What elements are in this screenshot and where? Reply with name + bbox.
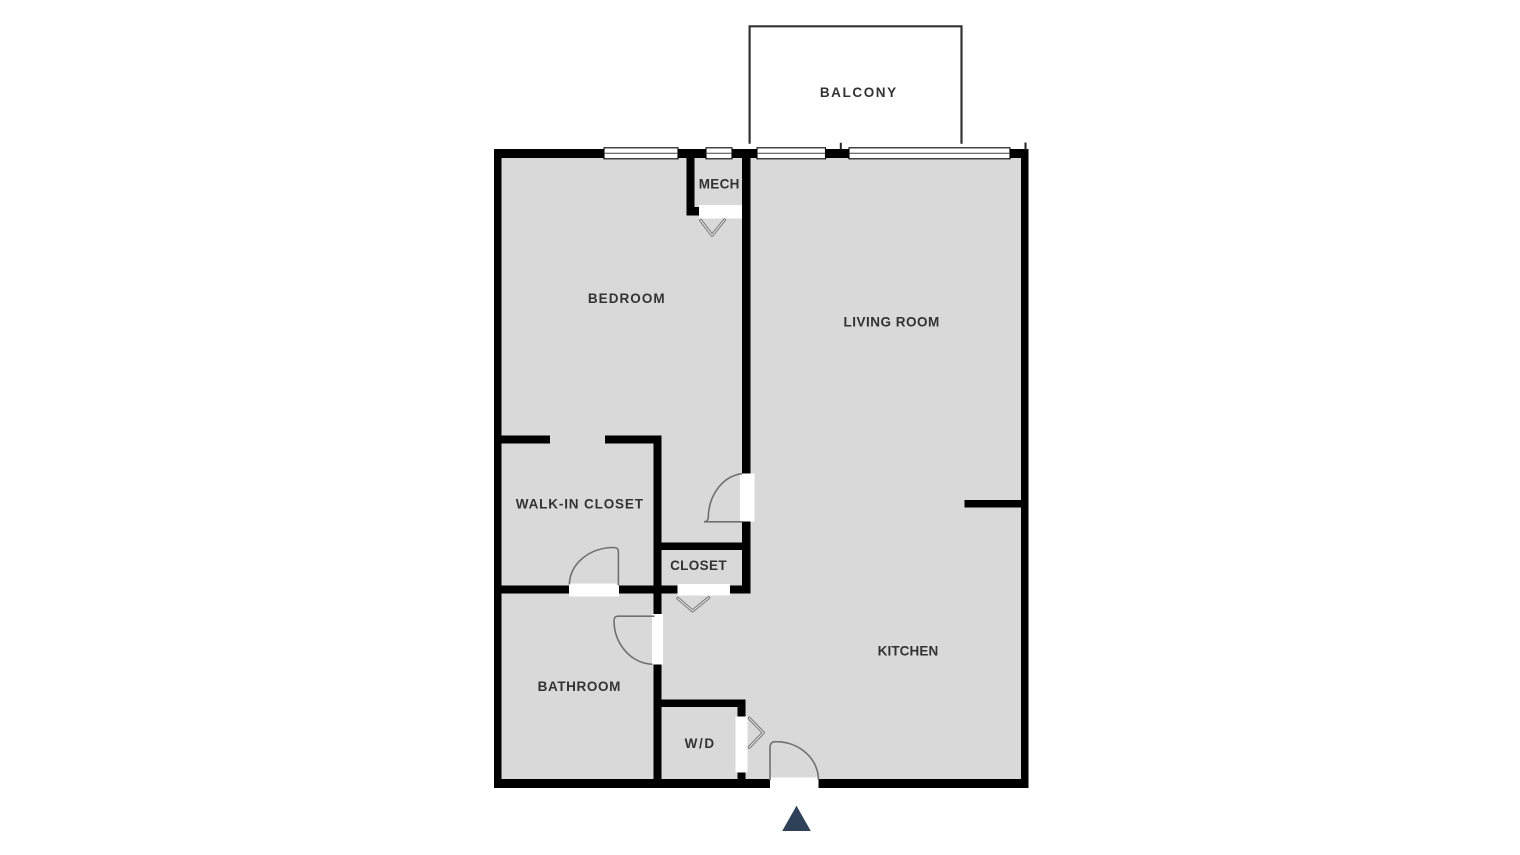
svg-text:MECH: MECH xyxy=(699,177,740,192)
svg-text:KITCHEN: KITCHEN xyxy=(878,644,939,659)
svg-text:BALCONY: BALCONY xyxy=(820,85,898,100)
svg-text:LIVING ROOM: LIVING ROOM xyxy=(843,315,939,330)
svg-text:W/D: W/D xyxy=(685,736,716,751)
svg-text:BEDROOM: BEDROOM xyxy=(588,291,666,306)
svg-text:CLOSET: CLOSET xyxy=(670,558,727,573)
svg-text:BATHROOM: BATHROOM xyxy=(538,679,621,694)
svg-text:WALK-IN CLOSET: WALK-IN CLOSET xyxy=(516,497,644,512)
